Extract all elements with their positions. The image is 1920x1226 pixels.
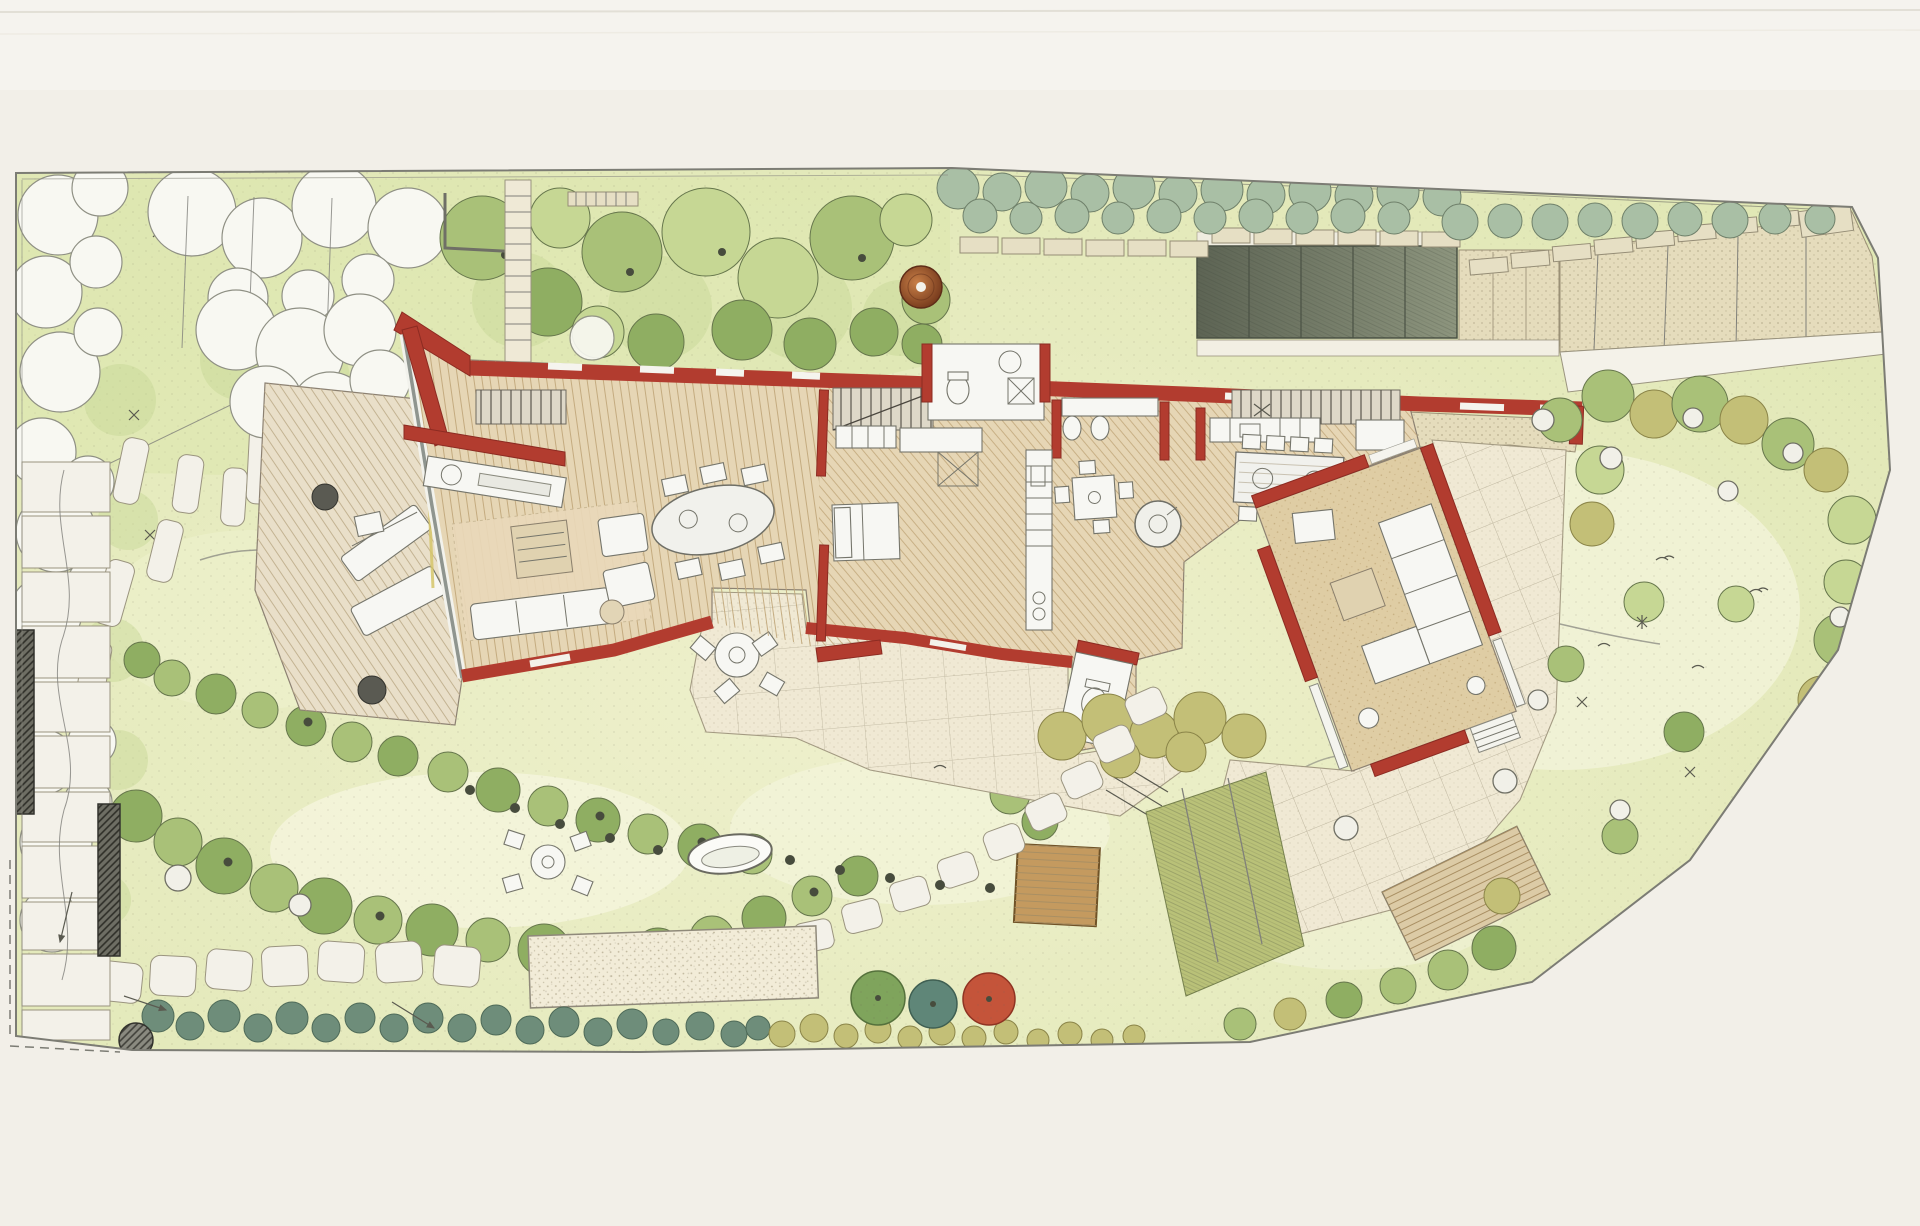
sideboard bbox=[900, 428, 982, 452]
tall-cupboard-run bbox=[1026, 450, 1052, 630]
bed bbox=[832, 503, 900, 561]
small-tree bbox=[570, 316, 614, 360]
deck-planter bbox=[312, 484, 338, 510]
armchair bbox=[598, 513, 649, 557]
scanned-plan-page bbox=[0, 0, 1920, 1226]
specimen-trees bbox=[851, 971, 1015, 1028]
gravel-bed bbox=[528, 926, 818, 1008]
coffee-table bbox=[511, 520, 573, 578]
side-table bbox=[600, 600, 624, 624]
deck-planter bbox=[358, 676, 386, 704]
north-bathroom-nook bbox=[922, 344, 1050, 420]
wing-chair bbox=[1292, 509, 1335, 543]
garden-shed bbox=[1014, 844, 1100, 926]
gravel-court bbox=[1197, 232, 1559, 356]
bench bbox=[568, 192, 638, 206]
paver-path bbox=[505, 180, 531, 362]
copper-pot-feature bbox=[900, 266, 942, 308]
round-family-table bbox=[1135, 501, 1181, 547]
site-plan-canvas bbox=[0, 0, 1920, 1226]
